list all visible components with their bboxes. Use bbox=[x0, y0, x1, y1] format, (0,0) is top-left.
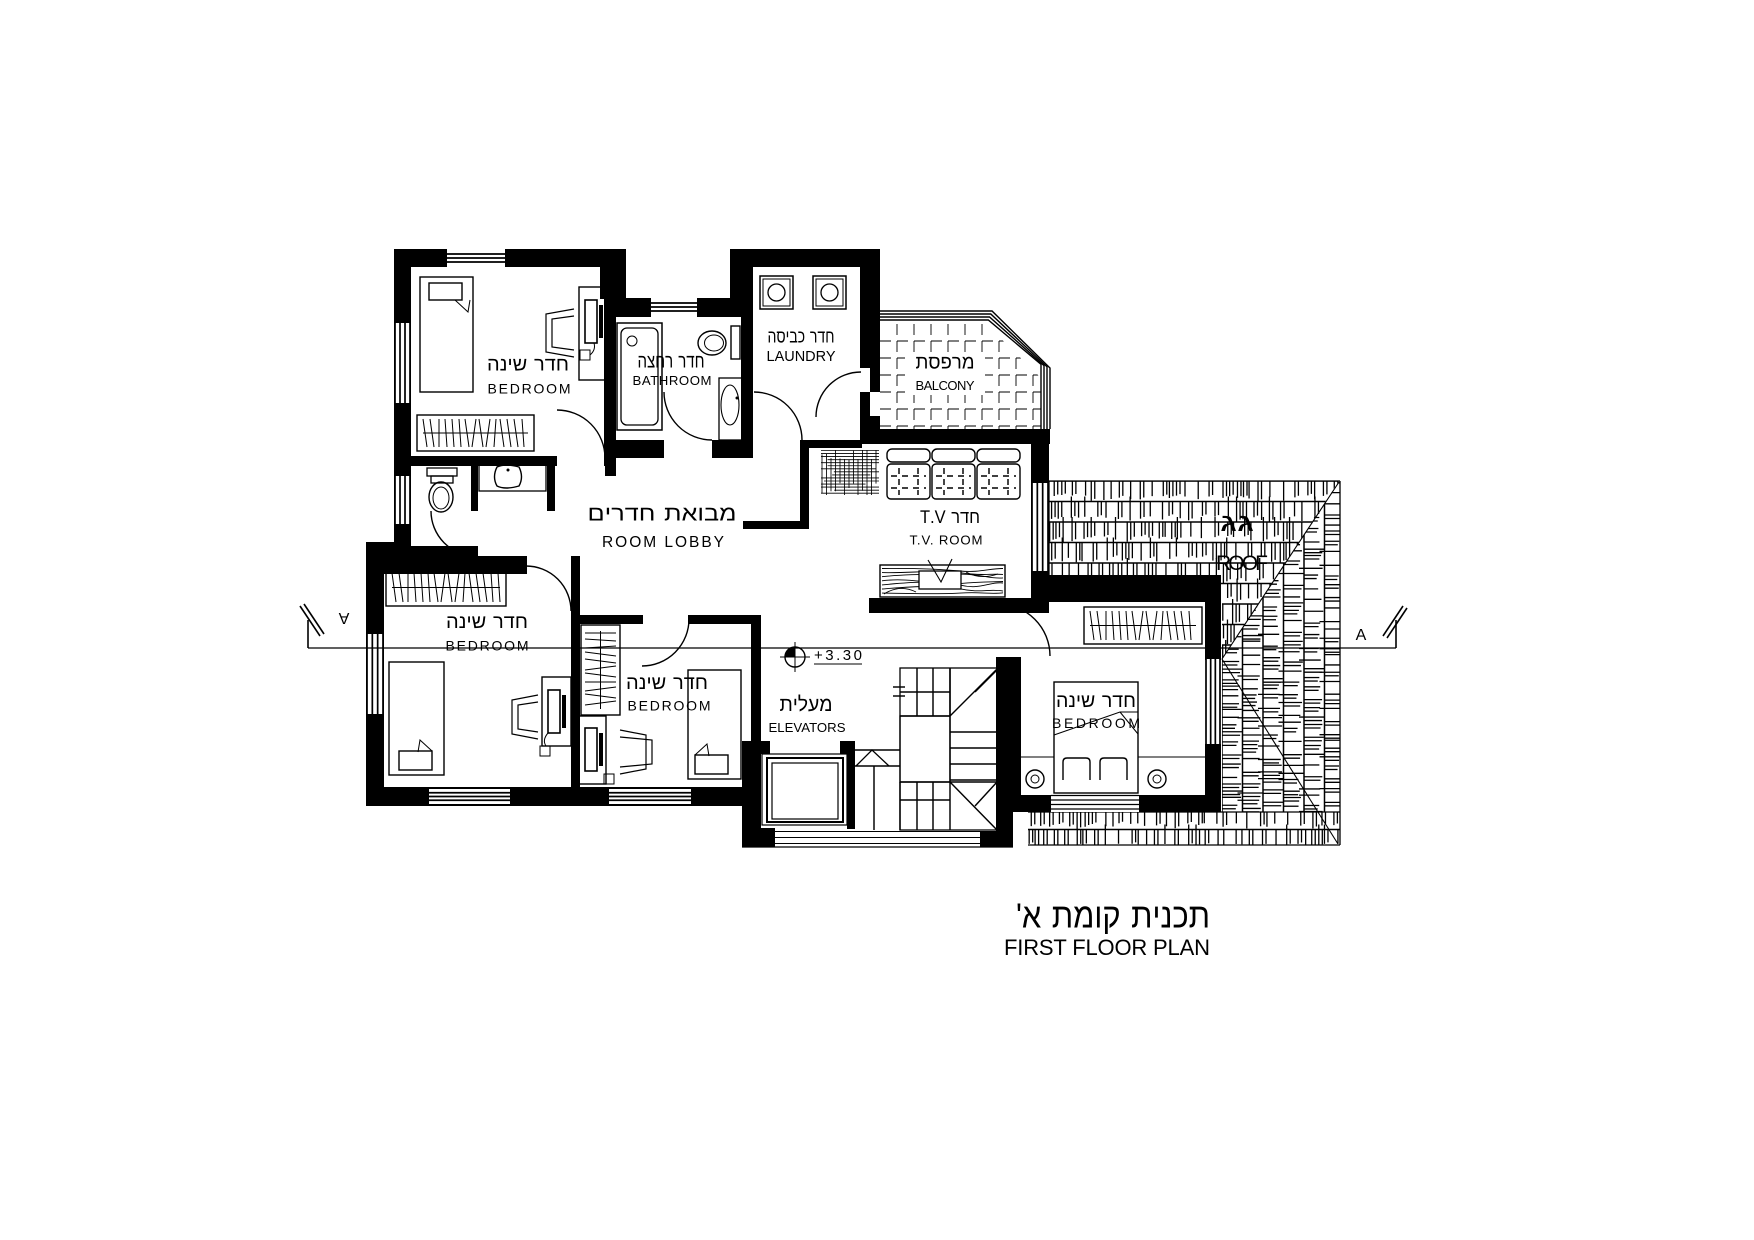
svg-text:+3.30: +3.30 bbox=[814, 647, 862, 664]
svg-text:LAUNDRY: LAUNDRY bbox=[767, 349, 836, 365]
svg-text:BEDROOM: BEDROOM bbox=[446, 638, 529, 654]
svg-text:BEDROOM: BEDROOM bbox=[628, 698, 711, 714]
svg-text:BALCONY: BALCONY bbox=[916, 378, 975, 393]
svg-text:BATHROOM: BATHROOM bbox=[633, 373, 712, 388]
svg-text:A: A bbox=[338, 609, 349, 626]
svg-text:FIRST FLOOR PLAN: FIRST FLOOR PLAN bbox=[1004, 935, 1210, 960]
svg-text:A: A bbox=[1356, 627, 1367, 644]
svg-text:BEDROOM: BEDROOM bbox=[488, 381, 571, 397]
svg-text:T.V. ROOM: T.V. ROOM bbox=[910, 533, 983, 548]
svg-text:ROOF: ROOF bbox=[1216, 552, 1268, 575]
svg-text:ELEVATORS: ELEVATORS bbox=[769, 720, 846, 735]
